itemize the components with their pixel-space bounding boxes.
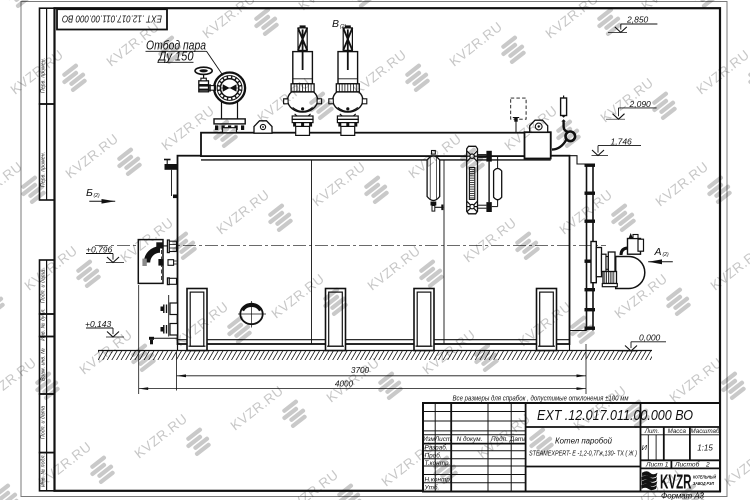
svg-text:N докум.: N докум. bbox=[457, 435, 483, 443]
svg-text:KVZR.RU: KVZR.RU bbox=[8, 47, 67, 97]
svg-text:KVZR.RU: KVZR.RU bbox=[694, 47, 750, 97]
svg-text:+0,143: +0,143 bbox=[85, 319, 112, 329]
svg-text:(2): (2) bbox=[94, 193, 100, 199]
svg-text:KVZR.RU: KVZR.RU bbox=[283, 467, 342, 500]
svg-text:KVZR.RU: KVZR.RU bbox=[639, 0, 698, 13]
svg-text:Подп. и дата: Подп. и дата bbox=[41, 406, 47, 439]
svg-text:Инв. № дубл.: Инв. № дубл. bbox=[41, 308, 47, 341]
svg-text:0,000: 0,000 bbox=[639, 333, 661, 343]
svg-text:(2): (2) bbox=[340, 24, 346, 30]
svg-text:ЕХТ .12.017.011.00.000 ВО: ЕХТ .12.017.011.00.000 ВО bbox=[537, 408, 693, 424]
svg-text:Листоб: Листоб bbox=[674, 461, 700, 469]
svg-text:KVZR.RU: KVZR.RU bbox=[708, 243, 750, 293]
svg-text:KVZR.RU: KVZR.RU bbox=[228, 383, 287, 433]
svg-text:Б: Б bbox=[86, 187, 93, 199]
svg-text:2: 2 bbox=[705, 462, 710, 469]
svg-text:Лист 1: Лист 1 bbox=[645, 462, 669, 469]
svg-text:Котел паробой: Котел паробой bbox=[555, 437, 613, 446]
svg-text:KVZR.RU: KVZR.RU bbox=[200, 0, 259, 41]
svg-text:Масштаб: Масштаб bbox=[691, 428, 720, 435]
svg-text:KVZR.RU: KVZR.RU bbox=[543, 0, 602, 41]
svg-text:KVZR.RU: KVZR.RU bbox=[0, 159, 25, 209]
svg-text:1:15: 1:15 bbox=[697, 444, 713, 453]
svg-text:KVZR.RU: KVZR.RU bbox=[132, 411, 191, 461]
svg-text:2,850: 2,850 bbox=[626, 15, 649, 25]
svg-text:А: А bbox=[654, 246, 662, 258]
svg-text:KVZR.RU: KVZR.RU bbox=[296, 0, 355, 13]
svg-text:Масса: Масса bbox=[668, 428, 687, 435]
svg-text:Лит.: Лит. bbox=[644, 428, 660, 435]
svg-text:Перв. примен.: Перв. примен. bbox=[41, 152, 47, 187]
svg-text:KVZR.RU: KVZR.RU bbox=[653, 159, 712, 209]
svg-text:1,746: 1,746 bbox=[611, 137, 633, 147]
svg-text:Утб.: Утб. bbox=[424, 484, 440, 492]
svg-text:ЗАВОД РЭП: ЗАВОД РЭП bbox=[693, 481, 715, 486]
svg-text:Лист: Лист bbox=[434, 436, 452, 443]
svg-text:KVZR.RU: KVZR.RU bbox=[324, 355, 383, 405]
svg-text:KVZR.RU: KVZR.RU bbox=[351, 47, 410, 97]
svg-text:KVZR.RU: KVZR.RU bbox=[447, 19, 506, 69]
svg-text:И: И bbox=[642, 443, 648, 452]
svg-text:В: В bbox=[332, 18, 339, 30]
svg-text:КОТЕЛЬНЫЙ: КОТЕЛЬНЫЙ bbox=[693, 473, 717, 480]
svg-text:KVZR.RU: KVZR.RU bbox=[722, 439, 750, 489]
svg-text:KVZR.RU: KVZR.RU bbox=[22, 243, 81, 293]
svg-text:(2): (2) bbox=[663, 252, 669, 258]
svg-text:KVZR.RU: KVZR.RU bbox=[0, 355, 39, 405]
svg-text:+0,796: +0,796 bbox=[86, 244, 113, 254]
svg-text:KVZR.RU: KVZR.RU bbox=[63, 131, 122, 181]
svg-text:KVZR.RU: KVZR.RU bbox=[667, 355, 726, 405]
